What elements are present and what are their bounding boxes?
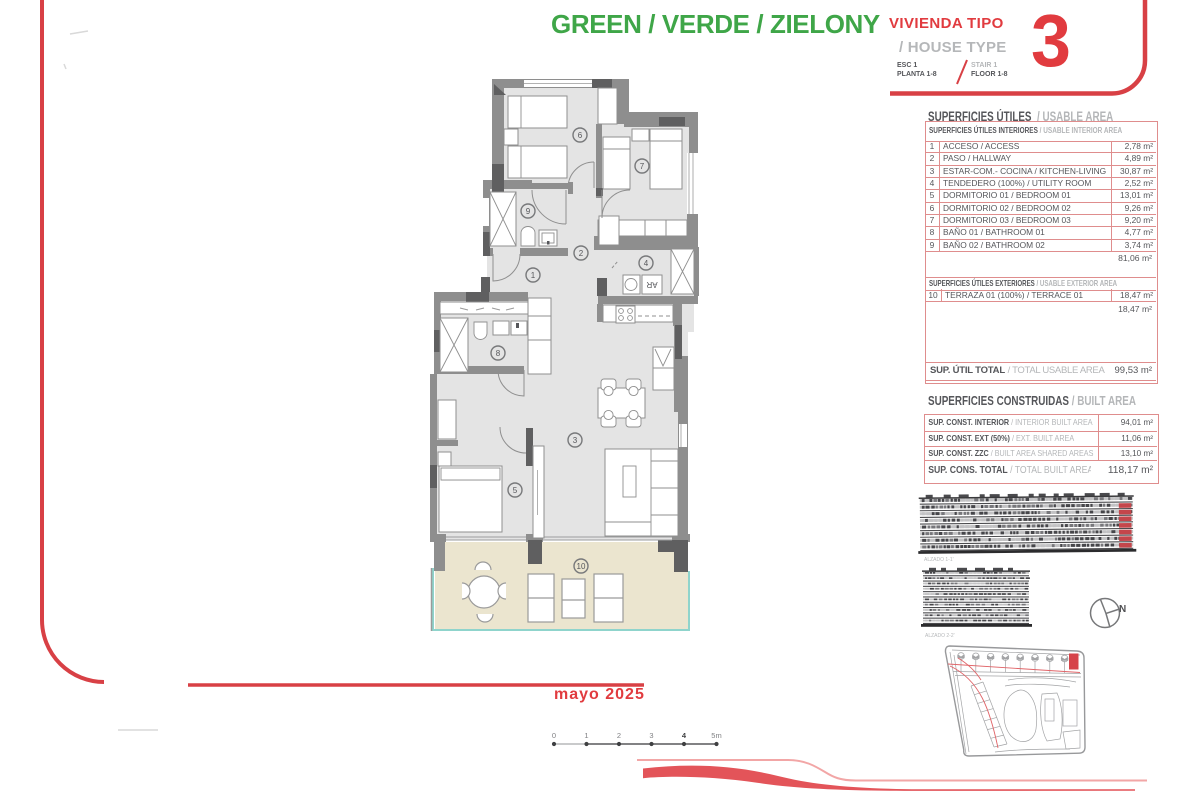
- svg-text:9: 9: [526, 207, 531, 216]
- svg-text:2: 2: [579, 249, 584, 258]
- svg-text:5: 5: [513, 486, 518, 495]
- svg-text:4: 4: [644, 259, 649, 268]
- svg-text:N: N: [1119, 604, 1126, 615]
- svg-text:0: 0: [552, 731, 556, 740]
- svg-text:AR: AR: [646, 280, 657, 289]
- svg-text:ALZADO 1-1': ALZADO 1-1': [924, 557, 954, 563]
- svg-text:ALZADO 2-2': ALZADO 2-2': [925, 633, 955, 639]
- svg-text:3: 3: [649, 731, 653, 740]
- svg-text:1: 1: [531, 271, 536, 280]
- svg-text:3: 3: [573, 436, 578, 445]
- svg-text:1: 1: [584, 731, 588, 740]
- svg-text:7: 7: [640, 162, 645, 171]
- svg-text:10: 10: [577, 562, 586, 571]
- svg-text:4: 4: [682, 731, 687, 740]
- svg-text:6: 6: [578, 131, 583, 140]
- svg-text:5m: 5m: [711, 731, 721, 740]
- svg-text:2: 2: [617, 731, 621, 740]
- svg-text:8: 8: [496, 349, 501, 358]
